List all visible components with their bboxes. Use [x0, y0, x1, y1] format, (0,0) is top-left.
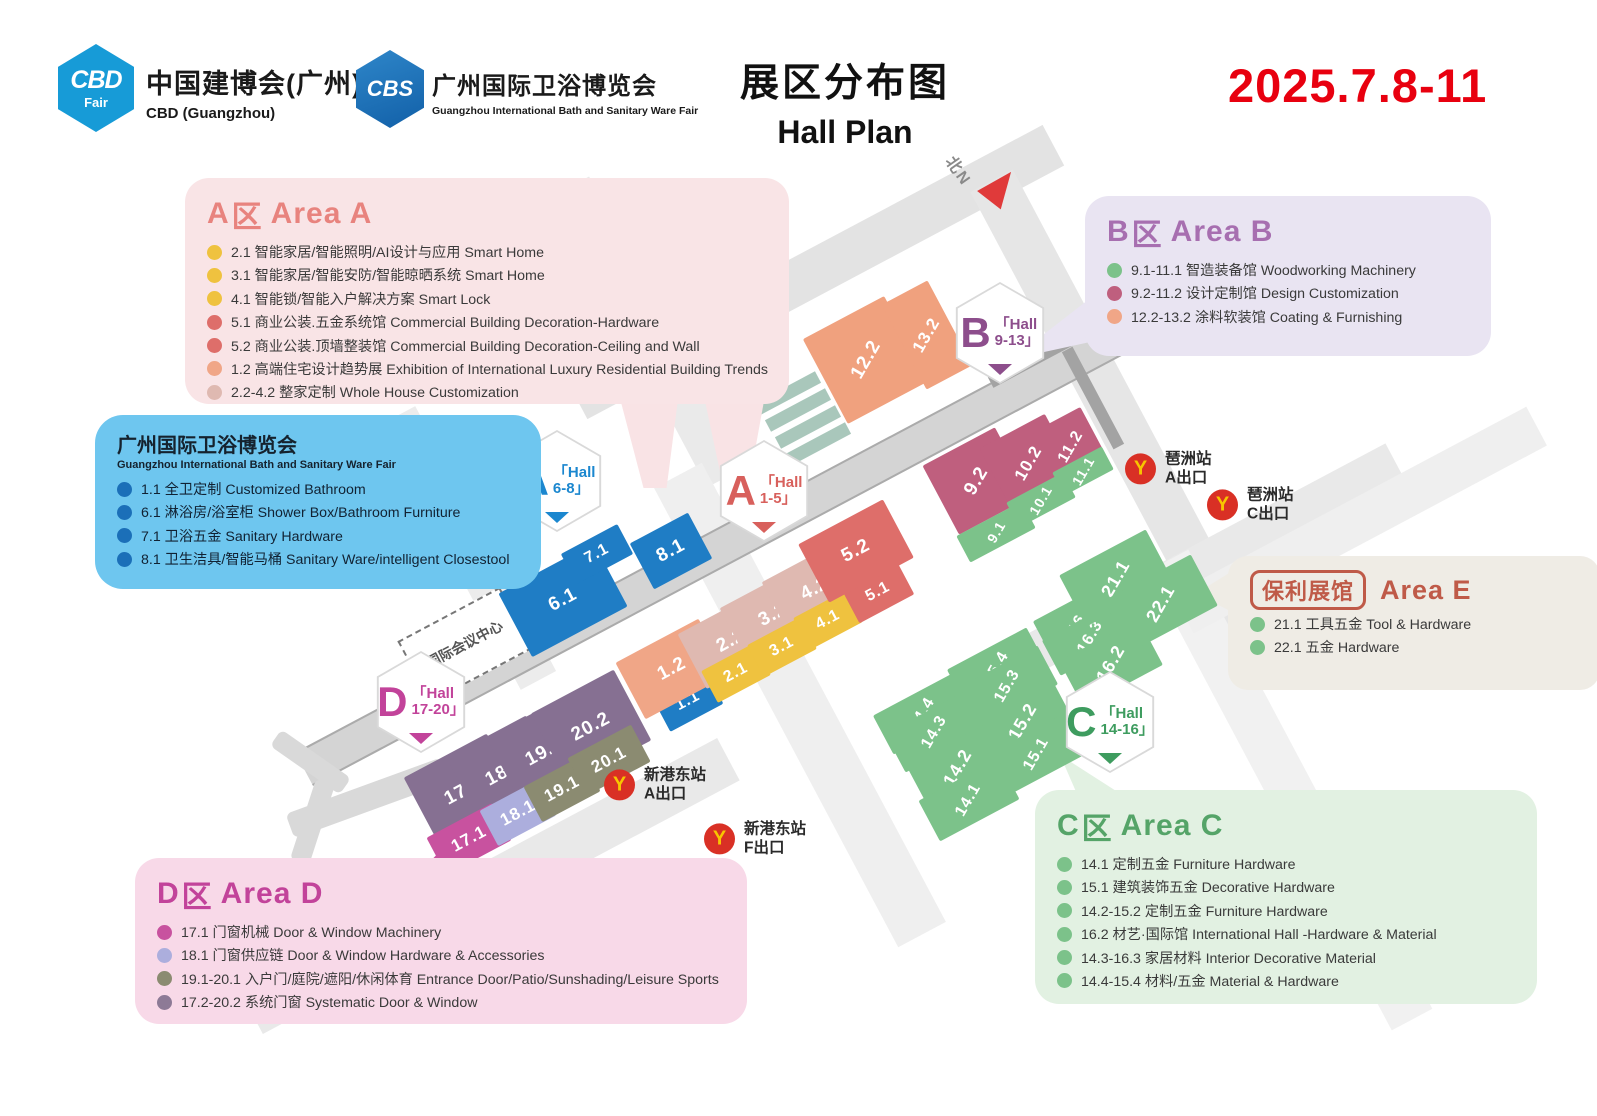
legend-item: 5.2 商业公装.顶墙整装馆 Commercial Building Decor…: [207, 336, 767, 356]
badge-hall-line2: 9-13」: [995, 333, 1040, 350]
legend-text: 3.1 智能家居/智能安防/智能晾晒系统 Smart Home: [231, 265, 545, 285]
legend-text: 14.1 定制五金 Furniture Hardware: [1081, 854, 1295, 874]
hall-badge-a-1-5: A「Hall1-5」: [718, 440, 810, 542]
hall-badge-c-14-16: C「Hall14-16」: [1064, 671, 1156, 773]
legend-item: 12.2-13.2 涂料软装馆 Coating & Furnishing: [1107, 307, 1469, 327]
badge-hall-range: 「Hall1-5」: [760, 475, 803, 508]
legend-dot-icon: [207, 291, 222, 306]
area-qu: 区: [232, 192, 263, 236]
metro-station-name: 琶洲站: [1165, 450, 1212, 469]
legend-item: 18.1 门窗供应链 Door & Window Hardware & Acce…: [157, 945, 725, 965]
legend-text: 18.1 门窗供应链 Door & Window Hardware & Acce…: [181, 945, 544, 965]
badge-letter: C: [1066, 701, 1096, 743]
legend-item: 15.1 建筑装饰五金 Decorative Hardware: [1057, 877, 1515, 897]
cbd-title-cn: 中国建博会(广州): [146, 62, 362, 101]
area-letter: A: [207, 197, 230, 231]
hall-label: 2.1: [721, 659, 752, 687]
legend-text: 8.1 卫生洁具/智能马桶 Sanitary Ware/intelligent …: [141, 549, 509, 569]
cbs-logo-text: CBS: [367, 76, 413, 102]
metro-station-name: 琶洲站: [1247, 486, 1294, 505]
badge-pointer-icon: [545, 512, 569, 523]
legend-text: 6.1 淋浴房/浴室柜 Shower Box/Bathroom Furnitur…: [141, 502, 460, 522]
metro-logo-icon: Y: [1207, 490, 1238, 521]
legend-text: 1.2 高端住宅设计趋势展 Exhibition of Internationa…: [231, 359, 768, 379]
legend-item: 3.1 智能家居/智能安防/智能晾晒系统 Smart Home: [207, 265, 767, 285]
legend-items: 14.1 定制五金 Furniture Hardware15.1 建筑装饰五金 …: [1057, 854, 1515, 991]
legend-items: 9.1-11.1 智造装备馆 Woodworking Machinery9.2-…: [1107, 260, 1469, 327]
area-name: Area B: [1171, 215, 1274, 249]
metro-exit-name: C出口: [1247, 505, 1294, 524]
badge-pointer-icon: [988, 364, 1012, 375]
legend-text: 14.3-16.3 家居材料 Interior Decorative Mater…: [1081, 948, 1376, 968]
metro-exit: Y新港东站A出口: [604, 766, 706, 803]
metro-exit-label: 新港东站A出口: [644, 766, 706, 803]
hall-label: 9.2: [960, 463, 994, 499]
legend-dot-icon: [157, 971, 172, 986]
badge-hall-line2: 17-20」: [411, 702, 464, 719]
hall-label: 17.1: [448, 821, 490, 856]
legend-dot-icon: [207, 245, 222, 260]
metro-exit-name: F出口: [744, 839, 806, 858]
cbd-logo-sub: Fair: [84, 95, 108, 110]
legend-area-b-title: B 区 Area B: [1107, 210, 1469, 254]
area-letter: B: [1107, 215, 1130, 249]
metro-exit-label: 新港东站F出口: [744, 820, 806, 857]
metro-logo-icon: Y: [604, 770, 635, 801]
badge-hall-line1: 「Hall: [411, 686, 464, 703]
metro-station-name: 新港东站: [744, 820, 806, 839]
legend-item: 7.1 卫浴五金 Sanitary Hardware: [117, 526, 519, 546]
hall-label: 3.1: [767, 633, 798, 661]
badge-letter: B: [960, 312, 990, 354]
area-qu: 区: [182, 872, 213, 916]
legend-text: 14.4-15.4 材料/五金 Material & Hardware: [1081, 971, 1339, 991]
legend-items: 17.1 门窗机械 Door & Window Machinery18.1 门窗…: [157, 922, 725, 1012]
badge-hall-range: 「Hall14-16」: [1100, 706, 1153, 739]
hall-badge-b-9-13: B「Hall9-13」: [954, 282, 1046, 384]
area-name: Area E: [1380, 575, 1472, 606]
legend-area-a: A 区 Area A 2.1 智能家居/智能照明/AI设计与应用 Smart H…: [185, 178, 789, 404]
legend-dot-icon: [1107, 286, 1122, 301]
legend-dot-icon: [157, 995, 172, 1010]
legend-item: 8.1 卫生洁具/智能马桶 Sanitary Ware/intelligent …: [117, 549, 519, 569]
legend-item: 19.1-20.1 入户门/庭院/遮阳/休闲体育 Entrance Door/P…: [157, 969, 725, 989]
legend-item: 5.1 商业公装.五金系统馆 Commercial Building Decor…: [207, 312, 767, 332]
badge-hall-line2: 14-16」: [1100, 722, 1153, 739]
legend-dot-icon: [1057, 973, 1072, 988]
legend-item: 2.2-4.2 整家定制 Whole House Customization: [207, 382, 767, 402]
legend-text: 2.1 智能家居/智能照明/AI设计与应用 Smart Home: [231, 242, 544, 262]
legend-item: 9.2-11.2 设计定制馆 Design Customization: [1107, 283, 1469, 303]
metro-exit-label: 琶洲站A出口: [1165, 450, 1212, 487]
legend-dot-icon: [117, 482, 132, 497]
cbd-logo-text: CBD: [70, 66, 121, 95]
legend-item: 21.1 工具五金 Tool & Hardware: [1250, 614, 1578, 634]
hall-label: 6.1: [545, 583, 581, 616]
metro-logo-icon: Y: [1125, 454, 1156, 485]
legend-dot-icon: [1057, 927, 1072, 942]
legend-area-e: 保利展馆 Area E 21.1 工具五金 Tool & Hardware22.…: [1228, 556, 1597, 690]
metro-exit-name: A出口: [644, 785, 706, 804]
legend-item: 14.2-15.2 定制五金 Furniture Hardware: [1057, 901, 1515, 921]
legend-dot-icon: [1250, 640, 1265, 655]
hall-label: 13.2: [909, 314, 945, 356]
legend-dot-icon: [157, 925, 172, 940]
legend-area-c: C 区 Area C 14.1 定制五金 Furniture Hardware1…: [1035, 790, 1537, 1004]
badge-hall-range: 「Hall17-20」: [411, 686, 464, 719]
badge-hall-line2: 6-8」: [553, 481, 596, 498]
area-name: Area A: [271, 197, 373, 231]
badge-hall-range: 「Hall6-8」: [553, 465, 596, 498]
legend-item: 4.1 智能锁/智能入户解决方案 Smart Lock: [207, 289, 767, 309]
legend-area-c-title: C 区 Area C: [1057, 804, 1515, 848]
metro-exit: Y新港东站F出口: [704, 820, 806, 857]
legend-text: 14.2-15.2 定制五金 Furniture Hardware: [1081, 901, 1328, 921]
bath-fair-title: 广州国际卫浴博览会: [117, 429, 519, 458]
legend-dot-icon: [117, 528, 132, 543]
legend-dot-icon: [207, 338, 222, 353]
legend-item: 17.2-20.2 系统门窗 Systematic Door & Window: [157, 992, 725, 1012]
legend-dot-icon: [1250, 617, 1265, 632]
cbd-brand: 中国建博会(广州) CBD (Guangzhou): [146, 62, 362, 122]
legend-items: 21.1 工具五金 Tool & Hardware22.1 五金 Hardwar…: [1250, 614, 1578, 657]
page-title-en: Hall Plan: [700, 114, 990, 151]
area-letter: D: [157, 877, 180, 911]
badge-hall-line1: 「Hall: [1100, 706, 1153, 723]
hall-label: 22.1: [1142, 581, 1180, 625]
hall-label: 1.2: [654, 652, 690, 685]
badge-pointer-icon: [409, 733, 433, 744]
area-name: Area C: [1121, 809, 1224, 843]
legend-item: 2.1 智能家居/智能照明/AI设计与应用 Smart Home: [207, 242, 767, 262]
area-e-boxed-label: 保利展馆: [1250, 570, 1366, 610]
area-letter: C: [1057, 809, 1080, 843]
cbs-title-en: Guangzhou International Bath and Sanitar…: [432, 105, 698, 117]
hall-label: 5.2: [838, 534, 874, 567]
legend-dot-icon: [207, 315, 222, 330]
legend-dot-icon: [117, 552, 132, 567]
legend-items: 1.1 全卫定制 Customized Bathroom6.1 淋浴房/浴室柜 …: [117, 479, 519, 569]
legend-bath-fair: 广州国际卫浴博览会 Guangzhou International Bath a…: [95, 415, 541, 589]
hall-label: 4.1: [813, 606, 844, 634]
legend-item: 14.4-15.4 材料/五金 Material & Hardware: [1057, 971, 1515, 991]
legend-text: 17.1 门窗机械 Door & Window Machinery: [181, 922, 441, 942]
legend-dot-icon: [207, 361, 222, 376]
legend-dot-icon: [1057, 857, 1072, 872]
legend-item: 14.1 定制五金 Furniture Hardware: [1057, 854, 1515, 874]
legend-area-e-title: 保利展馆 Area E: [1250, 570, 1578, 610]
legend-dot-icon: [1057, 950, 1072, 965]
legend-dot-icon: [1057, 880, 1072, 895]
hall-badge-d-17-20: D「Hall17-20」: [375, 651, 467, 753]
hall-label: 15.1: [1020, 734, 1053, 773]
metro-exit-name: A出口: [1165, 469, 1212, 488]
metro-exit-label: 琶洲站C出口: [1247, 486, 1294, 523]
event-date: 2025.7.8-11: [1228, 58, 1487, 113]
legend-text: 15.1 建筑装饰五金 Decorative Hardware: [1081, 877, 1335, 897]
badge-hall-line1: 「Hall: [760, 475, 803, 492]
page-title: 展区分布图 Hall Plan: [700, 52, 990, 151]
legend-text: 12.2-13.2 涂料软装馆 Coating & Furnishing: [1131, 307, 1402, 327]
metro-exit: Y琶洲站C出口: [1207, 486, 1294, 523]
legend-text: 1.1 全卫定制 Customized Bathroom: [141, 479, 366, 499]
badge-hall-range: 「Hall9-13」: [995, 317, 1040, 350]
legend-item: 14.3-16.3 家居材料 Interior Decorative Mater…: [1057, 948, 1515, 968]
legend-text: 9.1-11.1 智造装备馆 Woodworking Machinery: [1131, 260, 1416, 280]
page-title-cn: 展区分布图: [700, 52, 990, 108]
area-qu: 区: [1082, 804, 1113, 848]
legend-text: 21.1 工具五金 Tool & Hardware: [1274, 614, 1471, 634]
legend-dot-icon: [1107, 309, 1122, 324]
legend-text: 4.1 智能锁/智能入户解决方案 Smart Lock: [231, 289, 490, 309]
legend-text: 2.2-4.2 整家定制 Whole House Customization: [231, 382, 519, 402]
legend-text: 17.2-20.2 系统门窗 Systematic Door & Window: [181, 992, 477, 1012]
metro-exit: Y琶洲站A出口: [1125, 450, 1212, 487]
legend-item: 22.1 五金 Hardware: [1250, 637, 1578, 657]
legend-item: 17.1 门窗机械 Door & Window Machinery: [157, 922, 725, 942]
area-qu: 区: [1132, 210, 1163, 254]
hall-label: 14.1: [952, 780, 985, 819]
badge-pointer-icon: [1098, 753, 1122, 764]
legend-area-d: D 区 Area D 17.1 门窗机械 Door & Window Machi…: [135, 858, 747, 1024]
badge-hall-line2: 1-5」: [760, 491, 803, 508]
metro-logo-icon: Y: [704, 824, 735, 855]
area-name: Area D: [221, 877, 324, 911]
bath-fair-subtitle: Guangzhou International Bath and Sanitar…: [117, 459, 519, 471]
hall-plan-poster: CBD Fair 中国建博会(广州) CBD (Guangzhou) CBS 广…: [0, 0, 1597, 1116]
badge-letter: A: [726, 470, 756, 512]
legend-text: 19.1-20.1 入户门/庭院/遮阳/休闲体育 Entrance Door/P…: [181, 969, 719, 989]
legend-item: 6.1 淋浴房/浴室柜 Shower Box/Bathroom Furnitur…: [117, 502, 519, 522]
legend-dot-icon: [207, 268, 222, 283]
legend-item: 16.2 材艺·国际馆 International Hall -Hardware…: [1057, 924, 1515, 944]
legend-area-b: B 区 Area B 9.1-11.1 智造装备馆 Woodworking Ma…: [1085, 196, 1491, 356]
cbs-fair-logo: CBS: [356, 50, 424, 128]
badge-letter: D: [377, 681, 407, 723]
legend-text: 9.2-11.2 设计定制馆 Design Customization: [1131, 283, 1399, 303]
legend-item: 1.1 全卫定制 Customized Bathroom: [117, 479, 519, 499]
badge-hall-line1: 「Hall: [553, 465, 596, 482]
legend-dot-icon: [157, 948, 172, 963]
legend-item: 9.1-11.1 智造装备馆 Woodworking Machinery: [1107, 260, 1469, 280]
legend-text: 7.1 卫浴五金 Sanitary Hardware: [141, 526, 343, 546]
legend-dot-icon: [1107, 263, 1122, 278]
badge-pointer-icon: [752, 522, 776, 533]
legend-text: 5.2 商业公装.顶墙整装馆 Commercial Building Decor…: [231, 336, 700, 356]
hall-label: 8.1: [653, 534, 689, 567]
legend-item: 1.2 高端住宅设计趋势展 Exhibition of Internationa…: [207, 359, 767, 379]
hall-label: 9.1: [983, 518, 1008, 545]
legend-dot-icon: [117, 505, 132, 520]
cbd-title-en: CBD (Guangzhou): [146, 105, 362, 122]
cbs-brand: 广州国际卫浴博览会 Guangzhou International Bath a…: [432, 66, 698, 117]
badge-hall-line1: 「Hall: [995, 317, 1040, 334]
legend-text: 5.1 商业公装.五金系统馆 Commercial Building Decor…: [231, 312, 659, 332]
legend-dot-icon: [1057, 903, 1072, 918]
hall-label: 7.1: [582, 540, 613, 568]
cbd-fair-logo: CBD Fair: [58, 44, 134, 132]
cbs-title-cn: 广州国际卫浴博览会: [432, 66, 698, 101]
legend-text: 22.1 五金 Hardware: [1274, 637, 1399, 657]
legend-text: 16.2 材艺·国际馆 International Hall -Hardware…: [1081, 924, 1437, 944]
legend-dot-icon: [207, 385, 222, 400]
legend-area-d-title: D 区 Area D: [157, 872, 725, 916]
hall-label: 12.2: [846, 337, 886, 383]
legend-items: 2.1 智能家居/智能照明/AI设计与应用 Smart Home3.1 智能家居…: [207, 242, 767, 402]
legend-area-a-title: A 区 Area A: [207, 192, 767, 236]
metro-station-name: 新港东站: [644, 766, 706, 785]
